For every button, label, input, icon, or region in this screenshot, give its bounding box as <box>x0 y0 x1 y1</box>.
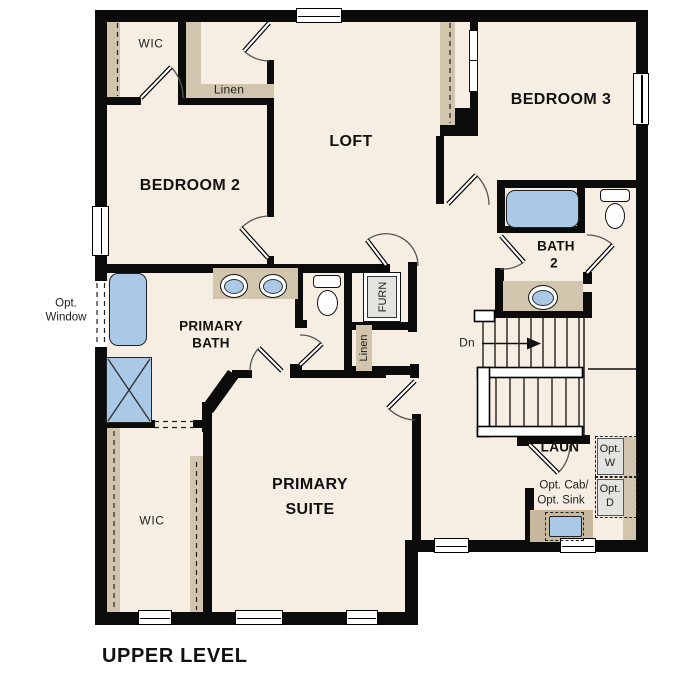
window <box>346 610 378 625</box>
floor-plan: WIC Linen BEDROOM 2 LOFT BEDROOM 3 BATH … <box>0 0 687 687</box>
wall <box>203 428 212 612</box>
window <box>92 206 109 256</box>
label-stairs-down: Dn <box>459 336 475 349</box>
closet-rod-shelf <box>107 428 120 612</box>
label-opt-window-line2: Window <box>46 312 87 325</box>
wall <box>470 92 478 108</box>
label-furnace: FURN <box>377 282 389 313</box>
label-opt-washer-line1: Opt. <box>600 443 621 455</box>
window <box>235 610 283 625</box>
wall <box>436 136 444 204</box>
label-bedroom3: BEDROOM 3 <box>511 91 612 109</box>
label-bath2-line2: 2 <box>550 257 558 272</box>
toilet-bowl <box>605 203 625 229</box>
label-primary-bath-line1: PRIMARY <box>179 320 243 335</box>
wall <box>344 264 352 374</box>
plan-title: UPPER LEVEL <box>102 645 248 668</box>
wall <box>295 320 307 328</box>
wall <box>290 364 302 378</box>
closet-rod-shelf <box>107 22 120 97</box>
label-linen-mid: Linen <box>358 335 370 362</box>
label-opt-dryer-line1: Opt. <box>600 483 621 495</box>
window <box>296 8 342 23</box>
label-loft: LOFT <box>329 133 372 151</box>
label-bath2-line1: BATH <box>537 240 575 255</box>
wall <box>583 272 592 284</box>
wall <box>497 310 587 318</box>
closet-rod-shelf <box>190 456 203 612</box>
shower <box>106 357 152 423</box>
window <box>434 538 469 553</box>
sink <box>220 274 248 298</box>
toilet-tank <box>600 189 630 202</box>
wall <box>267 97 274 217</box>
toilet-bowl <box>317 290 338 316</box>
label-opt-window-line1: Opt. <box>55 298 77 311</box>
wall <box>95 97 141 105</box>
sink <box>528 285 558 310</box>
label-wic-bottom: WIC <box>139 514 164 527</box>
toilet-tank <box>313 275 341 288</box>
wall <box>412 414 421 542</box>
wall <box>497 180 637 188</box>
label-wic-top: WIC <box>138 37 163 50</box>
label-primary-bath-line2: BATH <box>192 337 230 352</box>
window <box>138 610 172 625</box>
bathtub <box>506 190 579 228</box>
label-bedroom2: BEDROOM 2 <box>140 177 241 195</box>
label-primary-suite-line2: SUITE <box>285 501 334 519</box>
label-primary-suite-line1: PRIMARY <box>272 476 348 494</box>
wall <box>193 420 212 428</box>
label-opt-washer-line2: W <box>605 457 615 469</box>
closet-door <box>469 30 478 61</box>
wall <box>517 435 529 446</box>
closet-rod-shelf <box>186 22 201 84</box>
label-opt-sink: Opt. Sink <box>537 495 584 508</box>
label-opt-dryer-line2: D <box>606 497 614 509</box>
label-laundry: LAUN <box>541 441 580 456</box>
wall <box>178 20 186 105</box>
wall <box>232 370 252 378</box>
wall <box>410 364 419 378</box>
optional-window <box>93 281 108 347</box>
wall <box>178 97 274 105</box>
label-linen-top: Linen <box>214 83 244 96</box>
optional-sink-box <box>545 512 584 541</box>
wall <box>408 262 417 332</box>
sink <box>259 274 287 298</box>
label-opt-cab: Opt. Cab/ <box>539 480 588 493</box>
closet-rod-shelf <box>440 22 455 125</box>
closet-door <box>469 60 478 92</box>
window <box>633 73 649 125</box>
wall <box>302 370 386 378</box>
bathtub <box>109 273 147 346</box>
